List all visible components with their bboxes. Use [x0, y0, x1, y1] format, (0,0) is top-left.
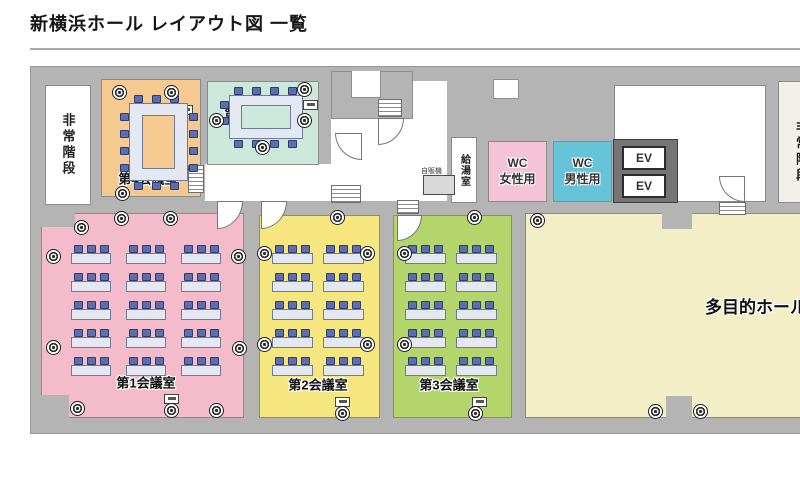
chair	[421, 245, 430, 253]
chair	[301, 329, 310, 337]
chair	[155, 329, 164, 337]
title-divider	[30, 48, 800, 50]
chair	[184, 273, 193, 281]
wall-panel	[303, 100, 318, 110]
speaker-icon	[164, 403, 179, 418]
chair	[100, 245, 109, 253]
chair	[234, 87, 243, 95]
room-emergency-stairs-right: 非常階段	[778, 81, 800, 203]
chair	[170, 182, 179, 190]
table	[71, 337, 111, 348]
speaker-icon	[255, 140, 270, 155]
chair	[288, 87, 297, 95]
chair	[210, 245, 219, 253]
chair	[252, 87, 261, 95]
chair	[339, 329, 348, 337]
table	[71, 253, 111, 264]
chair	[120, 113, 129, 121]
kitchenette-label: 給湯室	[457, 154, 472, 187]
chair	[87, 245, 96, 253]
stairs-steps	[719, 202, 746, 215]
chair	[352, 329, 361, 337]
chair	[288, 245, 297, 253]
chair	[220, 101, 229, 109]
emergency-stairs-right-label: 非常階段	[792, 120, 800, 184]
speaker-icon	[360, 246, 375, 261]
chair	[275, 329, 284, 337]
table	[456, 337, 497, 348]
chair	[352, 301, 361, 309]
chair	[352, 357, 361, 365]
table	[71, 281, 111, 292]
wall-notch	[666, 396, 692, 418]
chair	[152, 95, 161, 103]
chair	[275, 273, 284, 281]
vending-machine	[423, 175, 455, 195]
chair	[155, 301, 164, 309]
chair	[339, 245, 348, 253]
speaker-icon	[257, 246, 272, 261]
chair	[326, 357, 335, 365]
chair	[421, 273, 430, 281]
chair	[129, 301, 138, 309]
speaker-icon	[231, 249, 246, 264]
chair	[189, 164, 198, 172]
speaker-icon	[297, 82, 312, 97]
chair	[472, 357, 481, 365]
chair	[129, 329, 138, 337]
floor-plan: 非常階段 給湯室 自販機 WC女性用 WC男性用 EV EV 非常階段	[30, 66, 800, 434]
chair	[155, 357, 164, 365]
chair	[326, 245, 335, 253]
table	[272, 281, 313, 292]
chair	[288, 357, 297, 365]
chair	[459, 329, 468, 337]
chair	[434, 357, 443, 365]
chair	[339, 301, 348, 309]
chair	[184, 357, 193, 365]
chair	[408, 301, 417, 309]
chair	[270, 140, 279, 148]
chair	[472, 273, 481, 281]
chair	[485, 301, 494, 309]
chair	[275, 245, 284, 253]
chair	[485, 245, 494, 253]
table	[323, 309, 364, 320]
chair	[408, 357, 417, 365]
speaker-icon	[648, 404, 663, 419]
chair	[408, 329, 417, 337]
chair	[421, 329, 430, 337]
chair	[326, 301, 335, 309]
stairwell-notch	[351, 71, 381, 98]
speaker-icon	[297, 113, 312, 128]
table	[323, 281, 364, 292]
page-title: 新横浜ホール レイアウト図 一覧	[30, 10, 308, 36]
chair	[189, 130, 198, 138]
chair	[234, 140, 243, 148]
corridor	[205, 164, 331, 201]
chair	[301, 357, 310, 365]
chair	[142, 273, 151, 281]
chair	[74, 273, 83, 281]
hall-label: 多目的ホール	[705, 293, 800, 318]
chair	[301, 301, 310, 309]
chair	[142, 301, 151, 309]
chair	[434, 329, 443, 337]
chair	[270, 87, 279, 95]
stairs-steps	[397, 200, 419, 214]
speaker-icon	[112, 85, 127, 100]
chair	[210, 329, 219, 337]
table	[126, 365, 166, 376]
chair	[120, 147, 129, 155]
chair	[352, 273, 361, 281]
chair	[210, 357, 219, 365]
chair	[197, 301, 206, 309]
chair	[210, 273, 219, 281]
chair	[87, 329, 96, 337]
chair	[100, 273, 109, 281]
wc-women-label: WC女性用	[499, 156, 535, 187]
chair	[288, 273, 297, 281]
chair	[74, 357, 83, 365]
stairs-steps	[378, 99, 402, 117]
chair	[472, 301, 481, 309]
wall-notch	[41, 395, 69, 418]
chair	[142, 329, 151, 337]
chair	[155, 273, 164, 281]
chair	[184, 301, 193, 309]
chair	[87, 357, 96, 365]
table	[126, 309, 166, 320]
room-wc-men: WC男性用	[553, 141, 612, 202]
table	[405, 365, 446, 376]
speaker-icon	[70, 401, 85, 416]
table	[272, 253, 313, 264]
chair	[210, 301, 219, 309]
chair	[197, 329, 206, 337]
chair	[74, 245, 83, 253]
table	[126, 281, 166, 292]
speaker-icon	[693, 404, 708, 419]
speaker-icon	[46, 340, 61, 355]
chair	[100, 329, 109, 337]
chair	[459, 245, 468, 253]
stairs-steps	[331, 185, 361, 203]
elevator-1[interactable]: EV	[622, 146, 666, 170]
chair	[189, 147, 198, 155]
room-3-label: 第3会議室	[419, 375, 478, 394]
conference-table-center	[241, 105, 291, 129]
wc-men-label: WC男性用	[564, 156, 600, 187]
speaker-icon	[397, 337, 412, 352]
conference-table-center	[142, 115, 175, 169]
chair	[339, 357, 348, 365]
speaker-icon	[46, 249, 61, 264]
chair	[472, 245, 481, 253]
chair	[87, 273, 96, 281]
table	[456, 365, 497, 376]
speaker-icon	[163, 211, 178, 226]
speaker-icon	[209, 403, 224, 418]
table	[456, 309, 497, 320]
table	[181, 281, 221, 292]
chair	[152, 182, 161, 190]
chair	[275, 301, 284, 309]
chair	[339, 273, 348, 281]
speaker-icon	[397, 246, 412, 261]
table	[71, 309, 111, 320]
speaker-icon	[360, 337, 375, 352]
table	[323, 253, 364, 264]
chair	[301, 245, 310, 253]
chair	[459, 301, 468, 309]
chair	[197, 245, 206, 253]
table	[181, 337, 221, 348]
speaker-icon	[530, 213, 545, 228]
chair	[275, 357, 284, 365]
chair	[74, 301, 83, 309]
chair	[120, 130, 129, 138]
emergency-stairs-left-label: 非常階段	[59, 113, 78, 177]
chair	[326, 329, 335, 337]
chair	[421, 301, 430, 309]
table	[405, 309, 446, 320]
speaker-icon	[335, 406, 350, 421]
speaker-icon	[468, 406, 483, 421]
speaker-icon	[115, 186, 130, 201]
chair	[485, 329, 494, 337]
chair	[184, 329, 193, 337]
chair	[100, 357, 109, 365]
chair	[100, 301, 109, 309]
chair	[189, 113, 198, 121]
chair	[197, 357, 206, 365]
speaker-icon	[232, 341, 247, 356]
chair	[197, 273, 206, 281]
speaker-icon	[330, 210, 345, 225]
table	[456, 281, 497, 292]
table	[323, 337, 364, 348]
chair	[142, 357, 151, 365]
chair	[184, 245, 193, 253]
table	[272, 337, 313, 348]
chair	[485, 357, 494, 365]
speaker-icon	[114, 211, 129, 226]
room-2-label: 第2会議室	[288, 375, 347, 394]
table	[181, 365, 221, 376]
chair	[134, 182, 143, 190]
chair	[434, 301, 443, 309]
speaker-icon	[257, 337, 272, 352]
table	[71, 365, 111, 376]
chair	[288, 140, 297, 148]
elevator-2[interactable]: EV	[622, 174, 666, 198]
table	[126, 253, 166, 264]
table	[323, 365, 364, 376]
room-wc-women: WC女性用	[488, 141, 547, 202]
chair	[301, 273, 310, 281]
elevator-shaft: EV EV	[613, 139, 678, 203]
speaker-icon	[74, 220, 89, 235]
table	[405, 281, 446, 292]
chair	[459, 357, 468, 365]
chair	[87, 301, 96, 309]
chair	[120, 164, 129, 172]
chair	[326, 273, 335, 281]
table	[181, 253, 221, 264]
chair	[129, 273, 138, 281]
chair	[434, 245, 443, 253]
chair	[134, 95, 143, 103]
chair	[459, 273, 468, 281]
chair	[472, 329, 481, 337]
table	[181, 309, 221, 320]
chair	[408, 273, 417, 281]
wall-recess	[493, 79, 519, 99]
chair	[434, 273, 443, 281]
table	[456, 253, 497, 264]
wall-notch	[41, 213, 75, 227]
chair	[485, 273, 494, 281]
table	[272, 365, 313, 376]
wall-notch	[662, 213, 692, 229]
chair	[74, 329, 83, 337]
chair	[142, 245, 151, 253]
chair	[421, 357, 430, 365]
speaker-icon	[209, 113, 224, 128]
chair	[288, 301, 297, 309]
table	[126, 337, 166, 348]
speaker-icon	[467, 210, 482, 225]
chair	[155, 245, 164, 253]
chair	[129, 245, 138, 253]
table	[272, 309, 313, 320]
chair	[288, 329, 297, 337]
speaker-icon	[164, 85, 179, 100]
chair	[129, 357, 138, 365]
room-emergency-stairs-left: 非常階段	[45, 85, 91, 205]
